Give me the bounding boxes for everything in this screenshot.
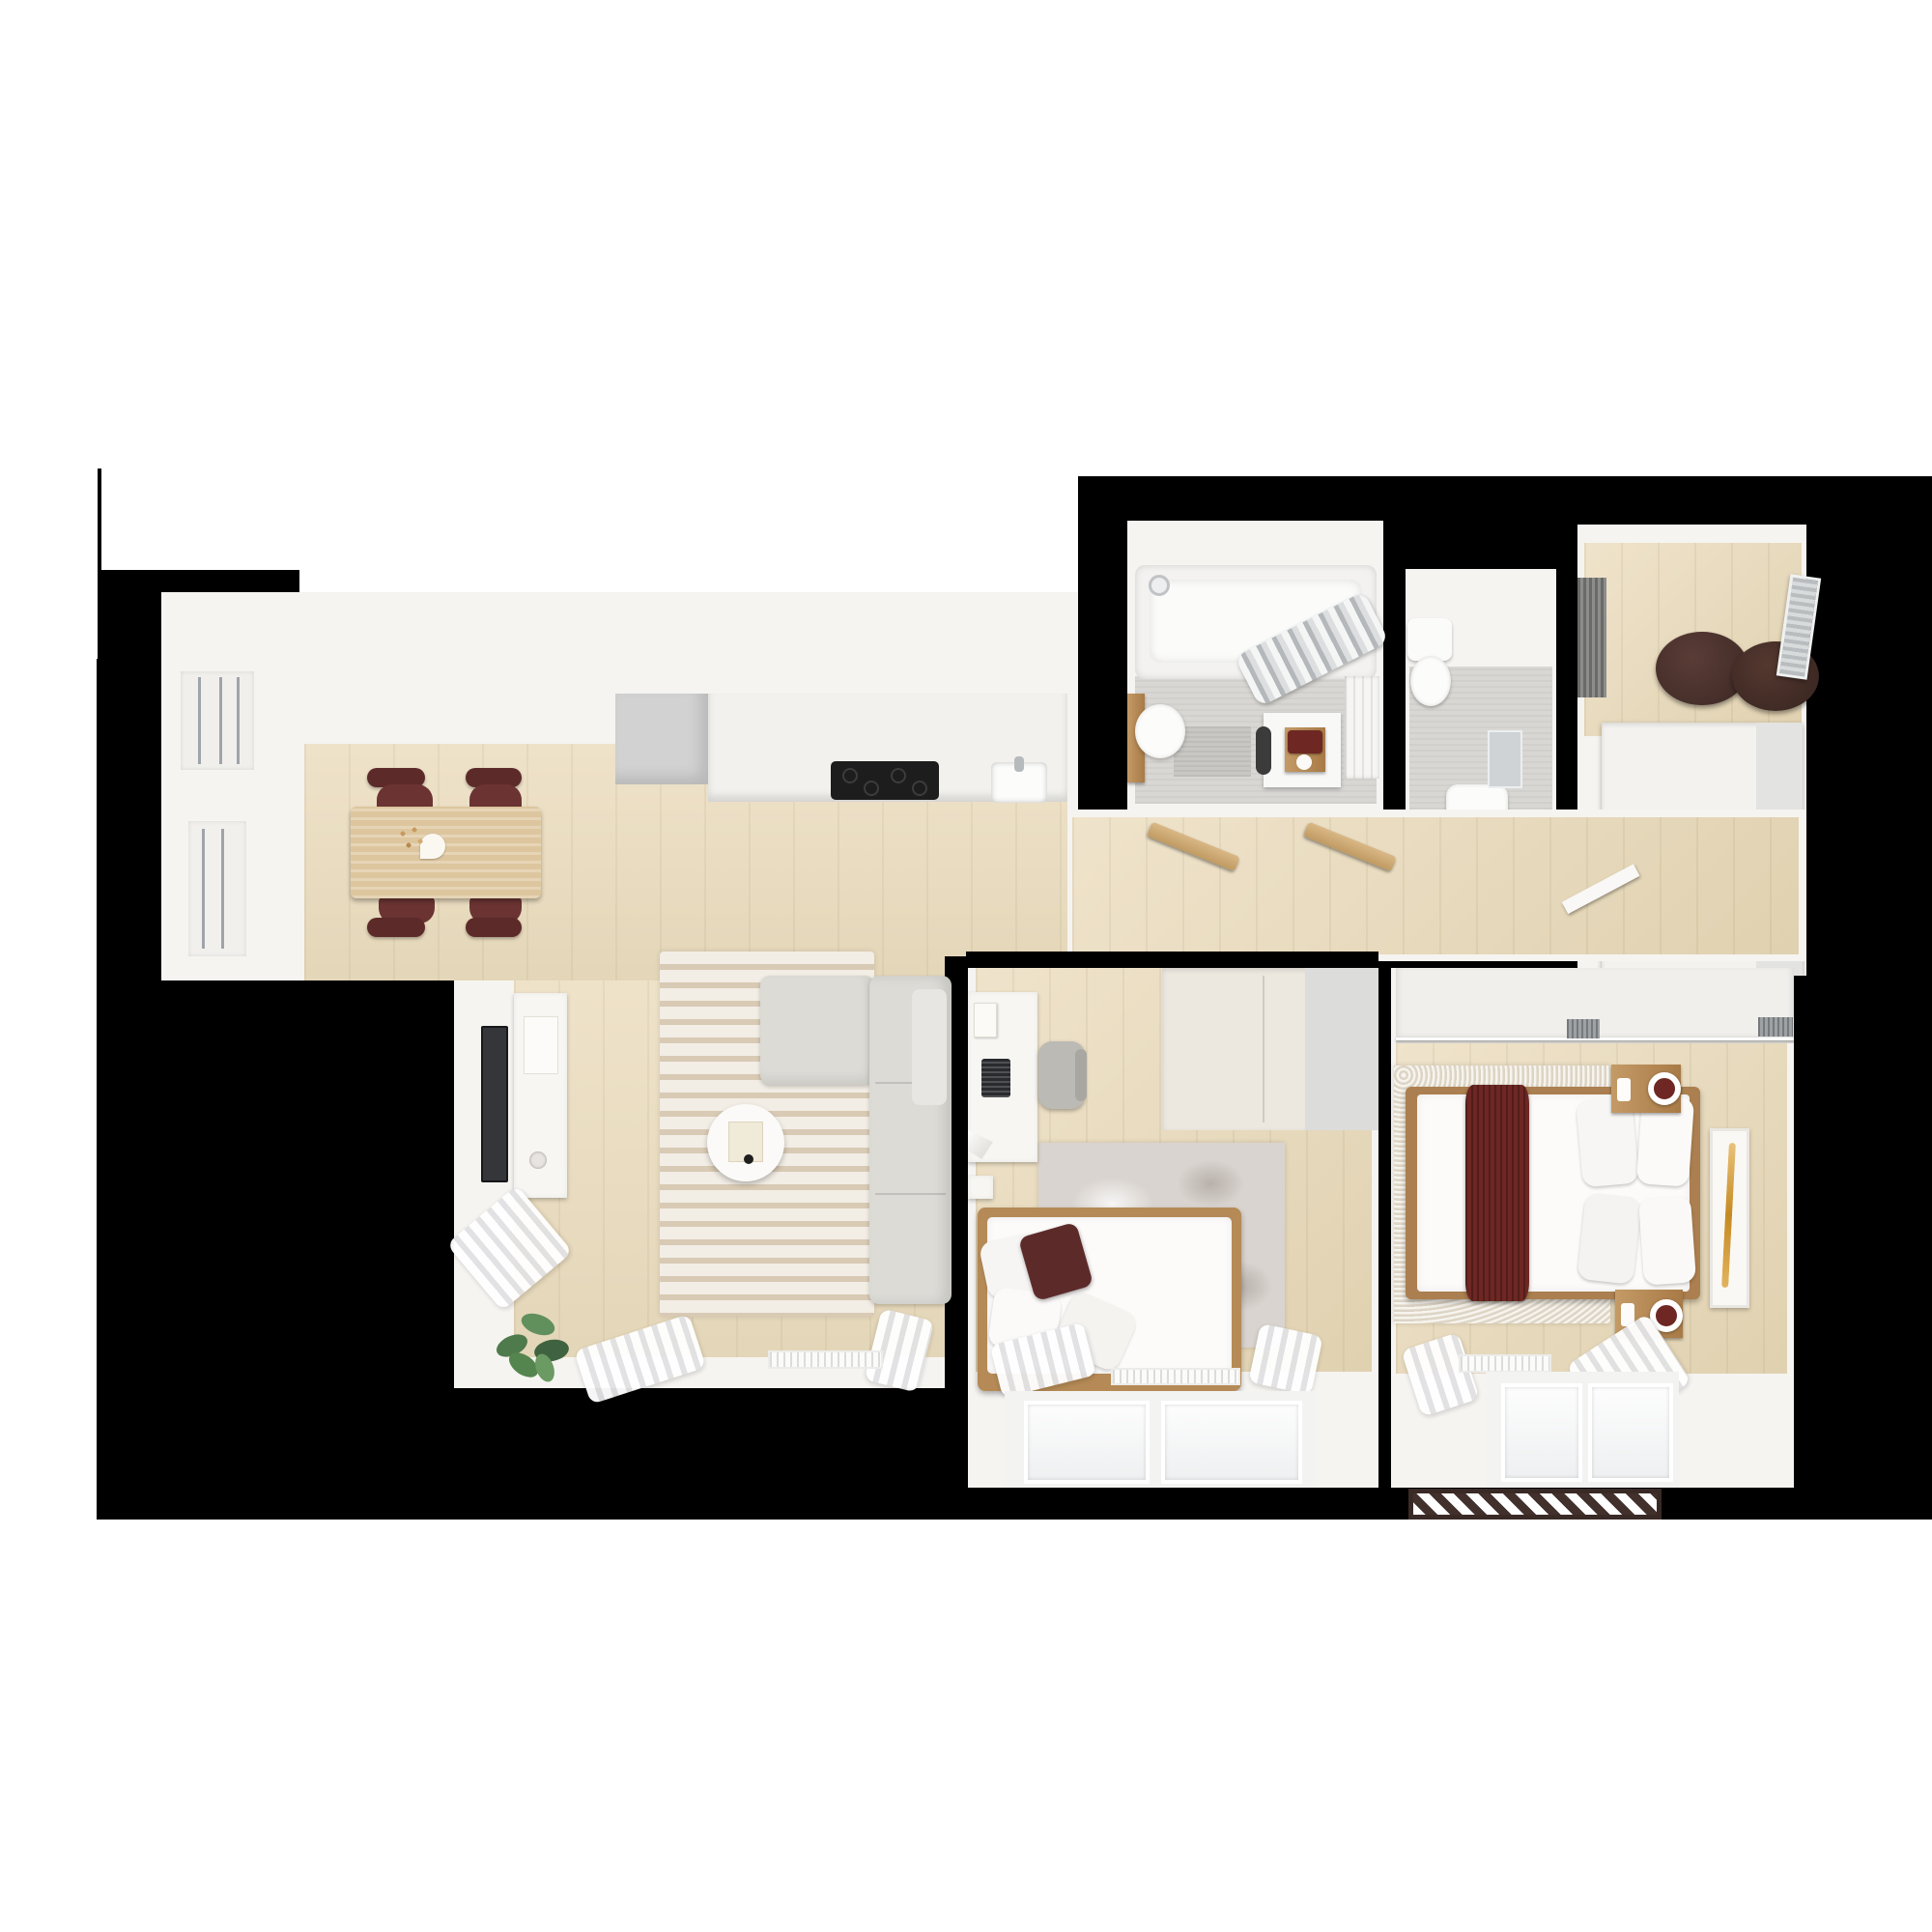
closet-handle [1567,1019,1600,1038]
toilet-tank [1407,618,1452,661]
sofa-chaise [760,976,874,1085]
dining-table [351,807,541,898]
toilet-bowl [1410,656,1451,706]
washer-door [1256,726,1271,775]
pedestal-basin [1135,704,1185,758]
door-glass-line [237,677,240,764]
kids-desk [968,992,1037,1162]
burgundy-towels [1288,730,1322,753]
desk-lamp [968,1130,993,1159]
fridge-unit [615,694,708,784]
kids-room [968,968,1378,1488]
coffee-table [707,1104,784,1181]
door-glass-line [219,677,222,764]
window-glass-line [221,829,224,949]
dried-flowers [395,824,428,857]
hallway [1067,810,1806,961]
faucet [1014,756,1024,772]
kids-shelf [968,1176,993,1199]
jar [1296,754,1312,770]
cushion-seam [875,1193,946,1195]
curtain-streak [1248,1323,1322,1395]
console-print [524,1016,558,1074]
window-glass-line [202,829,205,949]
window-glass [1161,1401,1302,1484]
burner [912,781,927,796]
shower-head [1149,575,1170,596]
kitchen-sink [991,762,1047,803]
striped-doormat [1408,1489,1662,1520]
induction-cooktop [831,761,939,800]
bath-mat [1174,726,1251,777]
balcony-door [181,671,254,770]
media-console [514,993,567,1198]
wall-art [1710,1128,1749,1308]
washing-machine [1264,713,1341,787]
kids-wardrobe-side [1305,968,1378,1130]
wc-mirror [1488,730,1522,788]
closet-handle [1758,1017,1793,1037]
nightstand [1611,1065,1681,1113]
kids-window-band [1005,1391,1316,1488]
dining-chair-back [367,918,425,937]
art-amber-streak [1721,1143,1736,1288]
potted-plant [488,1307,575,1381]
living-radiator [768,1350,883,1369]
window-glass [1501,1383,1582,1482]
bedroom-radiator [1459,1354,1551,1373]
small-dish [744,1154,753,1164]
door-glass-line [198,677,201,764]
pillow [1577,1192,1641,1285]
wall-tv [481,1026,508,1182]
mask-step-left [161,980,454,1388]
burner [891,768,906,783]
desk-chair [1038,1041,1085,1109]
pillow [1638,1195,1696,1286]
laptop [981,1059,1010,1097]
burner [864,781,879,796]
ring-lamp [1648,1072,1681,1105]
bedroom [1391,968,1794,1488]
sofa-armrest [912,989,947,1105]
dining-chair-back [466,918,522,937]
kids-radiator [1111,1368,1240,1385]
sliding-closet [1396,968,1794,1043]
wardrobe-seam [1263,976,1264,1122]
floorplan-render [0,0,1932,1932]
shoe-mat [1577,578,1606,697]
bathroom [1127,521,1383,810]
sofa-body [869,976,952,1304]
kids-wardrobe [1162,968,1378,1130]
burgundy-runner [1465,1085,1529,1301]
window-glass [1588,1383,1673,1482]
burner [842,768,858,783]
left-window [188,821,246,956]
bedroom-window-band [1486,1372,1679,1488]
nightstand-slot [1617,1078,1631,1101]
bath-paneled-door [1345,676,1379,779]
chair-backrest [1075,1049,1087,1101]
double-bed [1406,1087,1700,1299]
book [974,1003,997,1037]
window-edge-line [98,469,101,1449]
towel-tray [1285,727,1325,772]
console-knob [529,1151,547,1169]
wall-kids-top [966,952,1378,968]
window-glass [1024,1401,1150,1484]
wc [1406,569,1556,840]
